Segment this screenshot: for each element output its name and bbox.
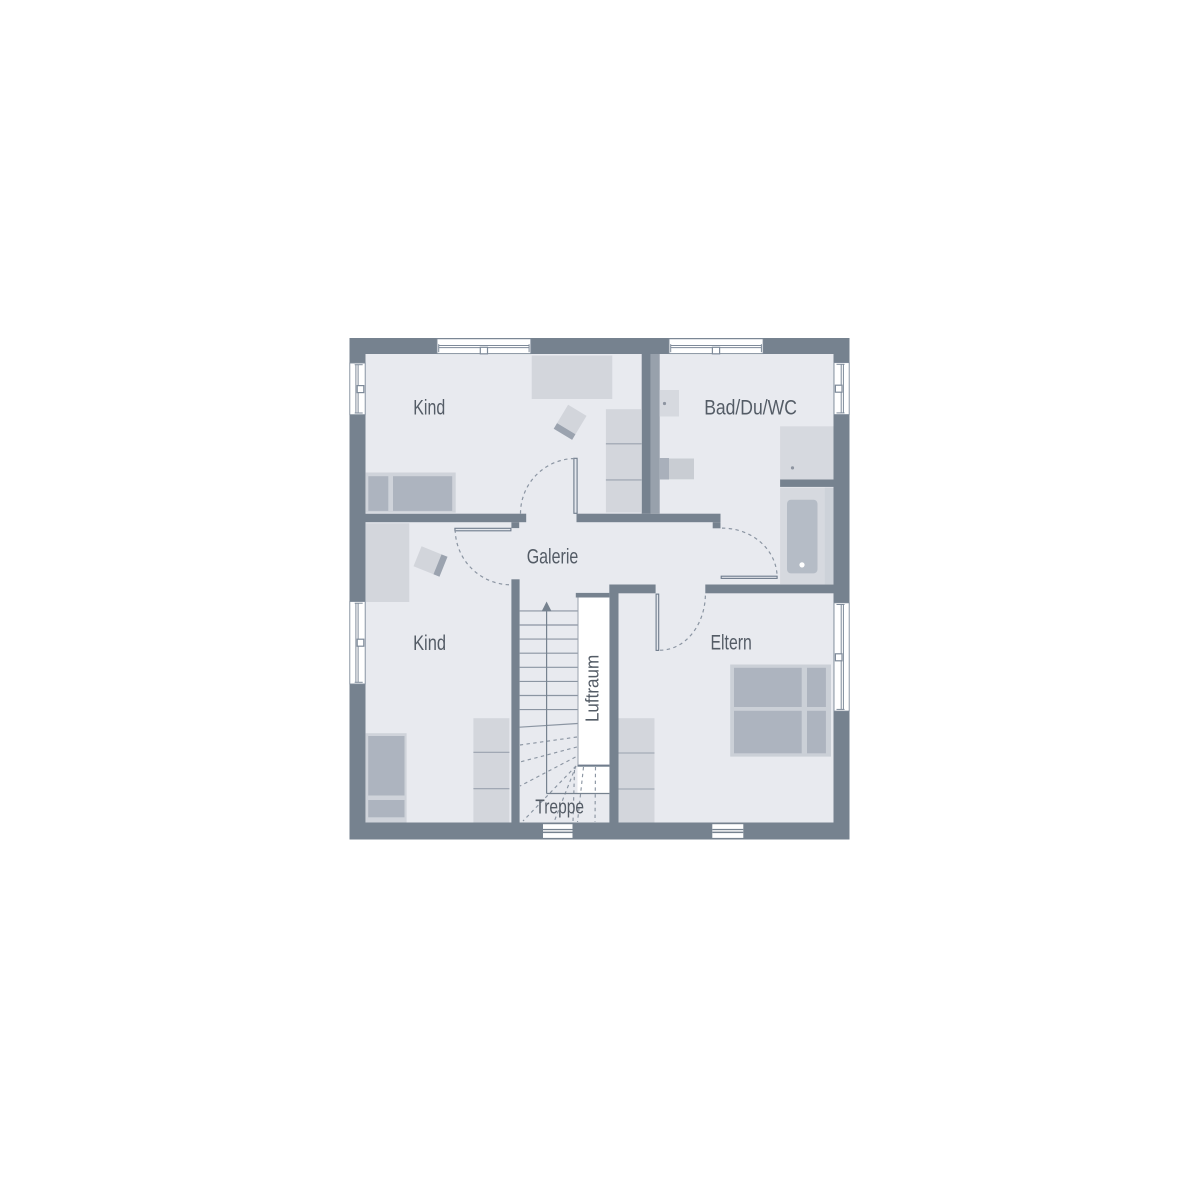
svg-text:Galerie: Galerie: [527, 546, 579, 569]
svg-text:Treppe: Treppe: [535, 797, 584, 819]
svg-text:Kind: Kind: [413, 632, 446, 655]
svg-text:Bad/Du/WC: Bad/Du/WC: [704, 396, 797, 419]
svg-text:Luftraum: Luftraum: [583, 655, 603, 722]
svg-text:Kind: Kind: [413, 397, 445, 420]
svg-text:Eltern: Eltern: [711, 631, 752, 654]
